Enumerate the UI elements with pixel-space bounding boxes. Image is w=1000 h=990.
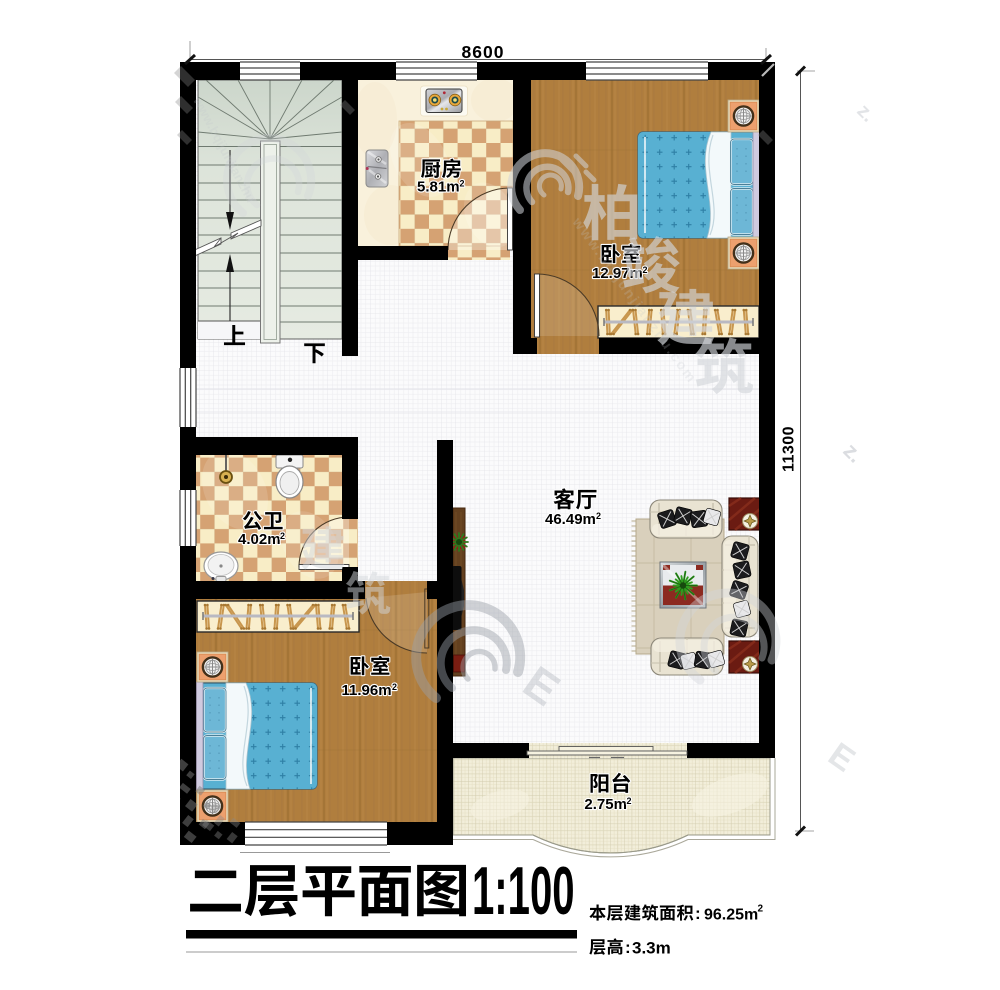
- svg-text:2: 2: [392, 682, 397, 692]
- svg-text:2.75m: 2.75m: [584, 796, 627, 813]
- svg-text:2: 2: [460, 179, 465, 189]
- svg-text:2: 2: [280, 531, 285, 541]
- svg-text:1:100: 1:100: [472, 852, 575, 929]
- svg-text:2: 2: [627, 796, 632, 806]
- svg-text:2: 2: [758, 904, 764, 915]
- svg-text:4.02m: 4.02m: [238, 531, 281, 548]
- svg-text::: :: [695, 904, 701, 923]
- svg-text:8600: 8600: [462, 42, 505, 62]
- svg-text:5.81m: 5.81m: [417, 179, 460, 196]
- svg-text:46.49m: 46.49m: [545, 511, 596, 528]
- svg-text:2: 2: [596, 511, 601, 521]
- svg-text:11.96m: 11.96m: [342, 682, 392, 699]
- svg-text:3.3m: 3.3m: [632, 939, 671, 958]
- svg-text:96.25m: 96.25m: [704, 907, 758, 924]
- svg-text:11300: 11300: [781, 426, 798, 472]
- svg-text::: :: [625, 938, 631, 957]
